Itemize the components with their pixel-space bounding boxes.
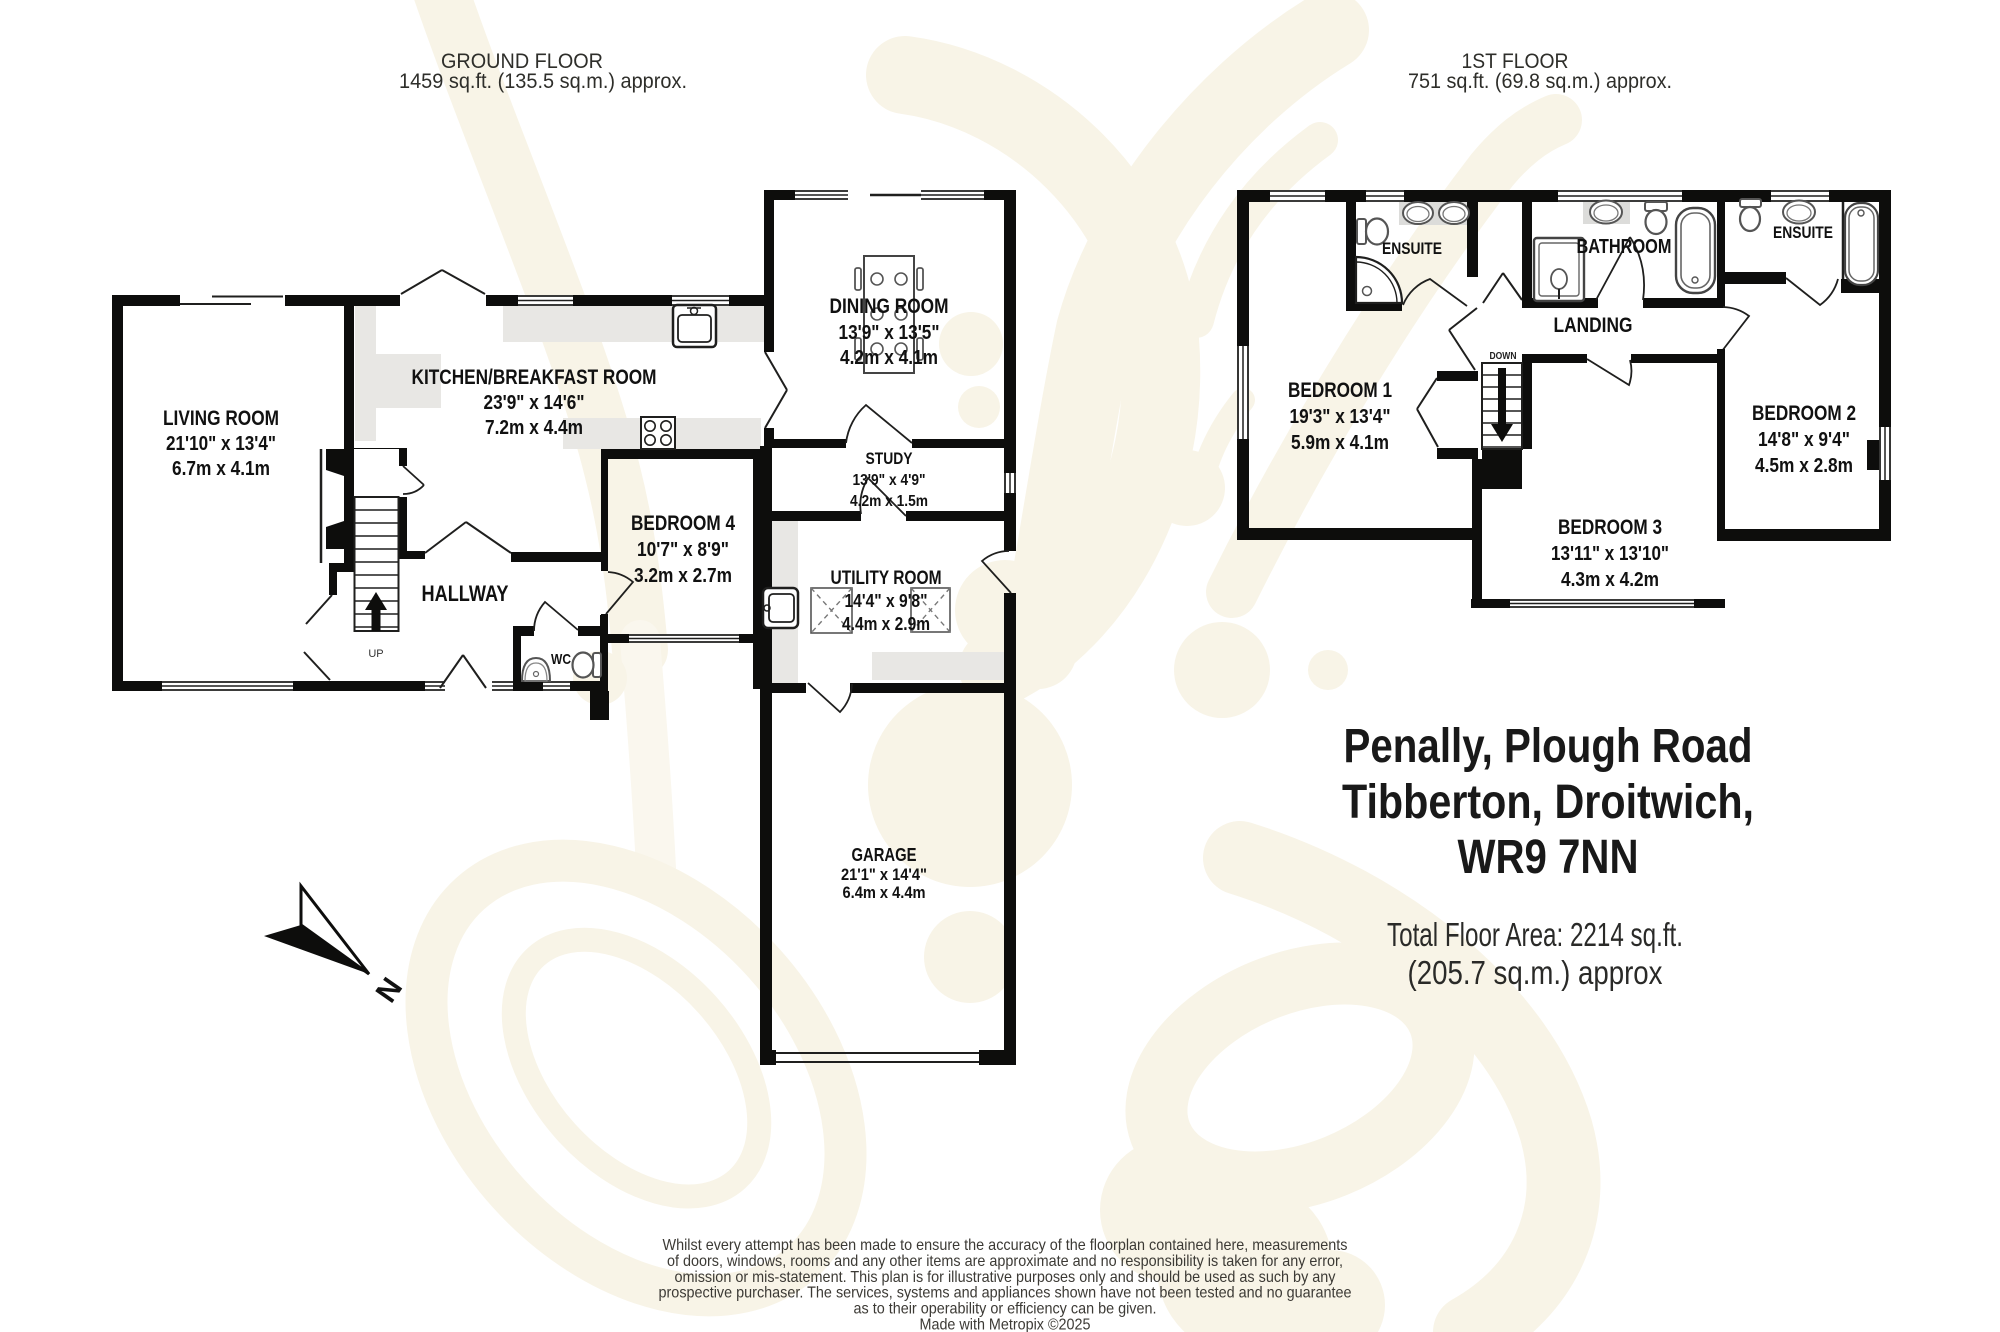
svg-text:BATHROOM: BATHROOM xyxy=(1577,236,1672,258)
svg-text:21'10" x 13'4": 21'10" x 13'4" xyxy=(166,433,276,455)
svg-text:Made with Metropix ©2025: Made with Metropix ©2025 xyxy=(920,1317,1091,1332)
svg-text:of doors, windows, rooms and a: of doors, windows, rooms and any other i… xyxy=(667,1253,1343,1270)
svg-text:ENSUITE: ENSUITE xyxy=(1773,223,1833,242)
svg-text:23'9" x 14'6": 23'9" x 14'6" xyxy=(484,392,585,414)
svg-text:BEDROOM 3: BEDROOM 3 xyxy=(1558,516,1662,539)
svg-text:3.2m x 2.7m: 3.2m x 2.7m xyxy=(634,565,732,587)
svg-text:WC: WC xyxy=(551,651,571,668)
svg-text:5.9m x 4.1m: 5.9m x 4.1m xyxy=(1291,432,1389,454)
svg-text:UTILITY ROOM: UTILITY ROOM xyxy=(831,568,942,589)
svg-text:4.4m x 2.9m: 4.4m x 2.9m xyxy=(842,614,930,634)
svg-text:1459 sq.ft. (135.5 sq.m.) appr: 1459 sq.ft. (135.5 sq.m.) approx. xyxy=(399,69,687,93)
svg-text:prospective purchaser. The ser: prospective purchaser. The services, sys… xyxy=(659,1285,1352,1302)
svg-text:omission or mis-statement. Thi: omission or mis-statement. This plan is … xyxy=(675,1269,1336,1286)
svg-text:Tibberton, Droitwich,: Tibberton, Droitwich, xyxy=(1342,776,1754,829)
svg-text:Total Floor Area: 2214 sq.ft.: Total Floor Area: 2214 sq.ft. xyxy=(1387,916,1683,953)
svg-text:DINING ROOM: DINING ROOM xyxy=(830,295,949,318)
svg-text:LANDING: LANDING xyxy=(1554,314,1633,337)
svg-text:14'8" x 9'4": 14'8" x 9'4" xyxy=(1758,429,1850,451)
svg-text:WR9 7NN: WR9 7NN xyxy=(1458,831,1639,884)
svg-text:7.2m x 4.4m: 7.2m x 4.4m xyxy=(485,417,583,439)
svg-text:ENSUITE: ENSUITE xyxy=(1382,239,1442,258)
svg-text:STUDY: STUDY xyxy=(866,449,914,468)
svg-text:19'3" x 13'4": 19'3" x 13'4" xyxy=(1290,406,1391,428)
svg-text:HALLWAY: HALLWAY xyxy=(422,581,509,606)
svg-text:(205.7 sq.m.) approx: (205.7 sq.m.) approx xyxy=(1408,954,1663,991)
svg-text:4.5m x 2.8m: 4.5m x 2.8m xyxy=(1755,455,1853,477)
svg-text:14'4" x 9'8": 14'4" x 9'8" xyxy=(845,591,928,611)
svg-text:13'9" x 4'9": 13'9" x 4'9" xyxy=(853,472,926,489)
svg-text:UP: UP xyxy=(368,648,383,660)
svg-text:4.3m x 4.2m: 4.3m x 4.2m xyxy=(1561,569,1659,591)
svg-text:Penally, Plough Road: Penally, Plough Road xyxy=(1344,720,1753,773)
svg-text:4.2m x 4.1m: 4.2m x 4.1m xyxy=(840,347,938,369)
svg-text:751 sq.ft. (69.8 sq.m.) approx: 751 sq.ft. (69.8 sq.m.) approx. xyxy=(1408,69,1672,93)
svg-text:BEDROOM 4: BEDROOM 4 xyxy=(631,512,735,535)
svg-text:Whilst every attempt has been: Whilst every attempt has been made to en… xyxy=(663,1237,1348,1254)
svg-text:6.4m x 4.4m: 6.4m x 4.4m xyxy=(843,883,926,902)
svg-text:13'11" x 13'10": 13'11" x 13'10" xyxy=(1551,543,1669,565)
svg-text:KITCHEN/BREAKFAST ROOM: KITCHEN/BREAKFAST ROOM xyxy=(412,366,657,389)
svg-text:10'7" x 8'9": 10'7" x 8'9" xyxy=(637,539,729,561)
svg-text:GARAGE: GARAGE xyxy=(852,845,917,865)
svg-text:6.7m x 4.1m: 6.7m x 4.1m xyxy=(172,458,270,480)
svg-text:DOWN: DOWN xyxy=(1490,350,1517,362)
svg-text:4.2m x 1.5m: 4.2m x 1.5m xyxy=(850,493,928,510)
svg-text:BEDROOM 2: BEDROOM 2 xyxy=(1752,402,1856,425)
svg-text:13'9" x 13'5": 13'9" x 13'5" xyxy=(839,322,940,344)
svg-text:LIVING ROOM: LIVING ROOM xyxy=(163,407,279,430)
svg-text:as to their operability or eff: as to their operability or efficiency ca… xyxy=(854,1301,1157,1318)
svg-text:21'1" x 14'4": 21'1" x 14'4" xyxy=(841,865,927,884)
svg-text:BEDROOM 1: BEDROOM 1 xyxy=(1288,379,1392,402)
